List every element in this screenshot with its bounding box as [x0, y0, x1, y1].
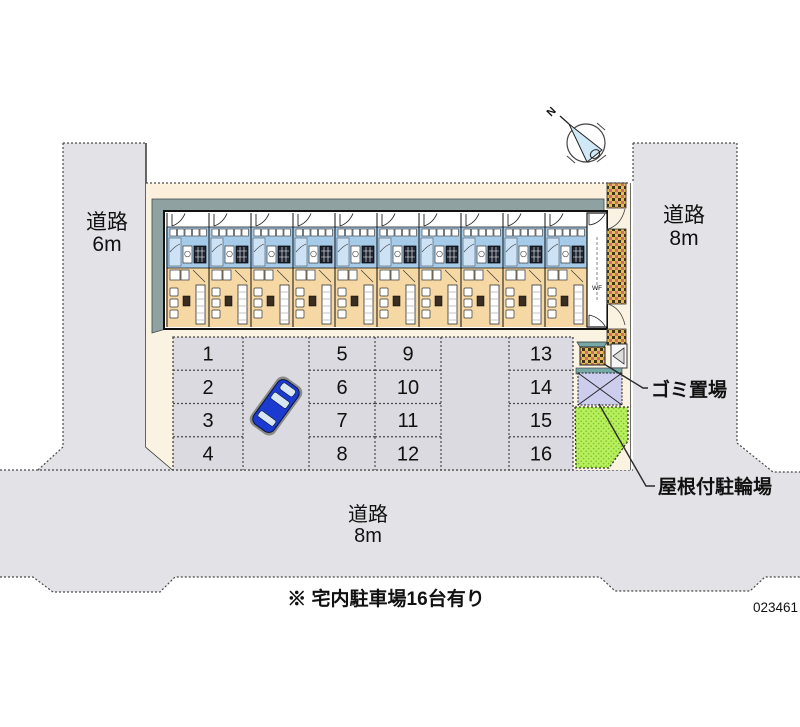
plan-number: 023461 — [753, 600, 798, 615]
building: WF — [152, 199, 607, 333]
compass-needle — [569, 124, 602, 162]
road-left-label: 道路 — [86, 211, 128, 234]
road-bottom-size: 8m — [354, 525, 382, 547]
stairwell-label: WF — [592, 285, 602, 292]
site-note: ※ 宅内駐車場16台有り — [287, 587, 484, 610]
parking-space-number: 10 — [397, 377, 419, 399]
parking-space-number: 7 — [336, 410, 347, 432]
parking-space-number: 1 — [202, 344, 213, 366]
parking-space-number: 11 — [398, 410, 419, 432]
parking-space-number: 16 — [530, 443, 552, 465]
parking-space-number: 4 — [202, 443, 213, 465]
road-right-size: 8m — [669, 227, 698, 250]
bicycle-label: 屋根付駐輪場 — [658, 475, 772, 498]
parking-space-number: 14 — [530, 377, 552, 399]
parking-lot: 12345678910111213141516 — [173, 337, 573, 470]
road-left-size: 6m — [92, 233, 121, 256]
parking-space-number: 8 — [336, 443, 347, 465]
parking-space-number: 6 — [336, 377, 347, 399]
site-plan: WF 12345678910111213141516 — [0, 0, 800, 727]
garbage-label: ゴミ置場 — [651, 378, 727, 401]
gate-icon — [611, 344, 627, 368]
compass-north-label: N — [545, 105, 559, 119]
stairwell: WF — [587, 213, 607, 327]
garbage-station-icon — [577, 342, 607, 365]
compass: N — [545, 105, 606, 163]
road-right-label: 道路 — [663, 204, 705, 227]
parking-space-number: 15 — [530, 410, 552, 432]
site-top-strip — [150, 185, 606, 200]
parking-space-number: 9 — [402, 344, 413, 366]
parking-space-number: 12 — [397, 443, 419, 465]
parking-space-number: 3 — [202, 410, 213, 432]
bicycle-shed-icon — [576, 368, 622, 405]
parking-space-number: 2 — [202, 377, 213, 399]
parking-space-number: 5 — [336, 344, 347, 366]
site-plan-drawing: WF 12345678910111213141516 — [0, 0, 800, 727]
road-bottom-label: 道路 — [348, 503, 388, 526]
parking-space-number: 13 — [530, 344, 552, 366]
